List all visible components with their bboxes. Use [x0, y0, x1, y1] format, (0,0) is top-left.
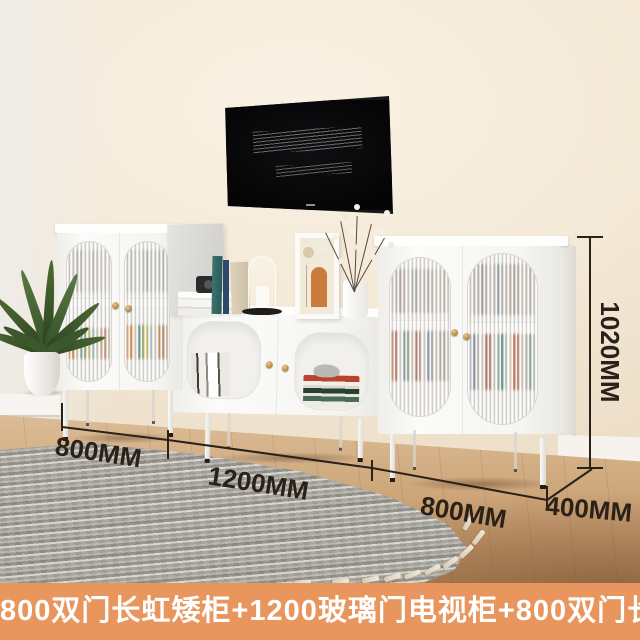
door-gap — [462, 246, 463, 434]
cabinet-leg — [540, 438, 546, 489]
cabinet-leg — [227, 413, 231, 449]
bird-figurine — [314, 364, 340, 378]
books-inside — [191, 351, 258, 397]
candle — [256, 286, 269, 309]
cloche-tray — [242, 308, 282, 315]
standing-book — [230, 262, 250, 315]
caption-banner: 800双门长虹矮柜+1200玻璃门电视柜+800双门长虹矮柜 — [0, 583, 640, 640]
standing-book — [223, 260, 229, 314]
product-photo-tv-cabinet-set: 800MM 1200MM 800MM 400MM 1020MM 800双门长虹矮… — [0, 0, 640, 640]
cabinet-leg — [413, 430, 416, 470]
branch — [325, 232, 355, 292]
gold-knob — [463, 333, 470, 340]
potted-palm-plant — [0, 198, 120, 400]
cabinet-leg — [390, 434, 395, 482]
blossom-branches — [298, 196, 414, 296]
cabinet-leg — [358, 418, 364, 462]
cabinet-side-panel — [558, 242, 576, 436]
cabinet-leg — [152, 390, 155, 424]
fluted-glass-texture — [468, 254, 537, 424]
plant-pot — [24, 352, 60, 396]
tv-credits-text-block — [276, 162, 353, 177]
cabinet-leg — [205, 413, 211, 463]
cabinet-leg — [514, 432, 517, 472]
white-blossoms — [350, 228, 356, 234]
gold-knob — [451, 329, 458, 336]
right-door-fluted-glass — [124, 241, 170, 382]
cabinet-leg — [168, 390, 173, 437]
gold-knob — [125, 305, 132, 312]
standing-book — [211, 256, 222, 314]
book-stack-inside — [303, 375, 360, 408]
glass-cloche — [248, 256, 276, 312]
tv-stand-cabinet — [164, 304, 390, 471]
tv-stand-left-door-glass — [186, 320, 262, 400]
branch — [354, 238, 385, 290]
right-door-fluted-glass — [467, 253, 538, 425]
tv-screen — [226, 100, 392, 210]
gold-knob — [282, 364, 289, 371]
cabinet-leg — [339, 417, 343, 451]
tv-stand-right-door-glass — [294, 332, 370, 412]
tv-credits-text-block — [252, 126, 362, 154]
fluted-glass-texture — [125, 242, 169, 381]
